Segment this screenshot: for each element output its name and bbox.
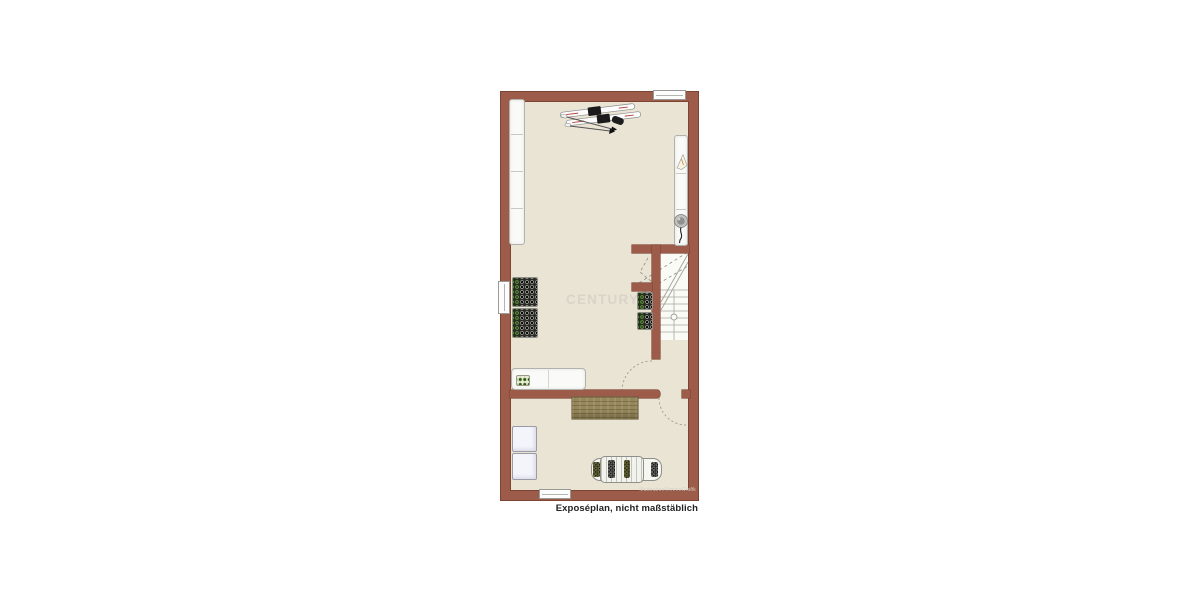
skis-icon — [560, 102, 641, 128]
vacuum-icon — [675, 215, 688, 244]
flame-icon — [677, 155, 687, 170]
plan-caption: Exposéplan, nicht maßstäblich — [556, 503, 698, 514]
equipment-layer — [500, 90, 699, 502]
floor-plan: CENTURY 21 — [500, 90, 699, 502]
illustration-credit: Illustration©immoGrafik — [639, 487, 696, 493]
floorplan-canvas: CENTURY 21 — [0, 0, 1200, 600]
